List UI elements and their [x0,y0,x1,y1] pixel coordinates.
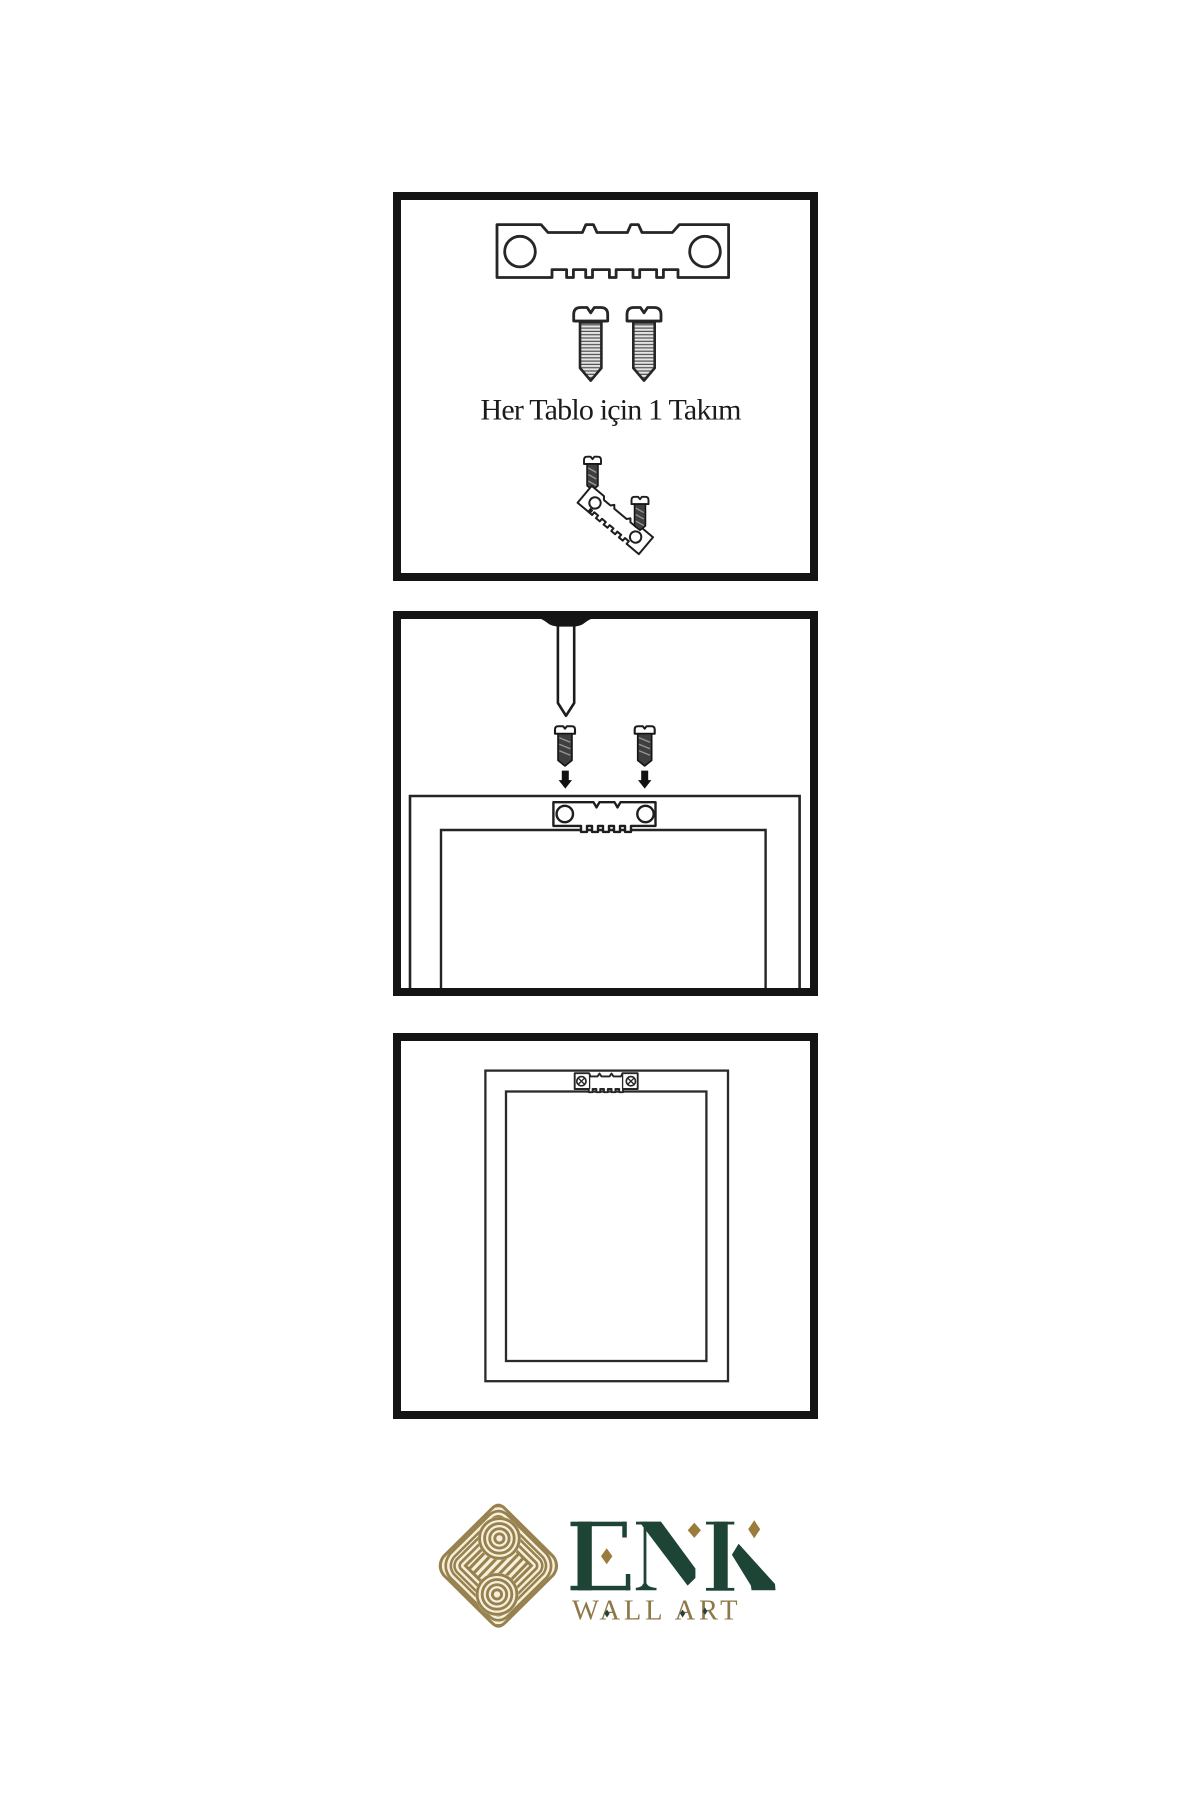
svg-text:WALL ART: WALL ART [572,1596,738,1627]
svg-text:Her Tablo için 1 Takım: Her Tablo için 1 Takım [481,394,742,427]
